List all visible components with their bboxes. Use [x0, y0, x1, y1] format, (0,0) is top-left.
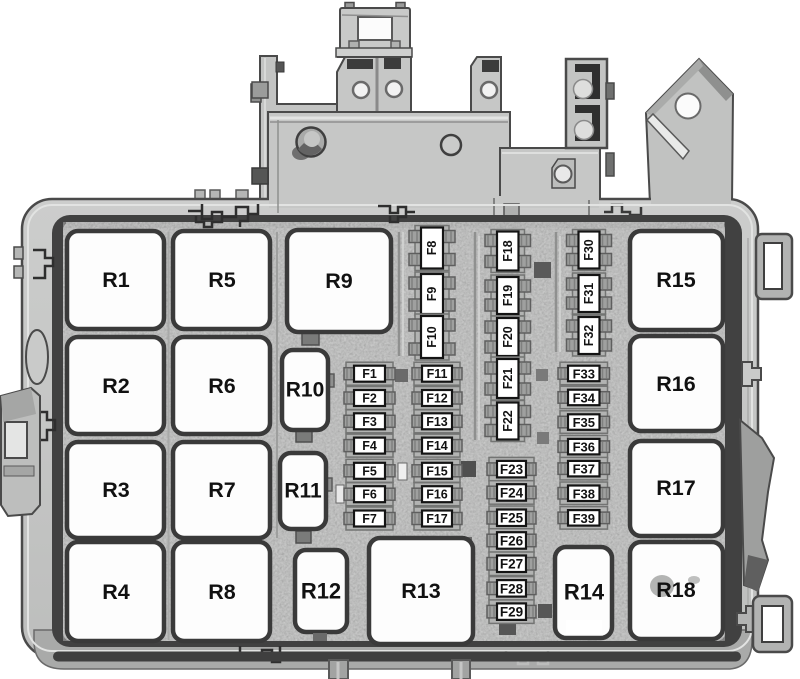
svg-text:F10: F10: [425, 326, 439, 348]
svg-text:F8: F8: [425, 241, 439, 256]
svg-text:R4: R4: [102, 580, 130, 604]
svg-text:R3: R3: [102, 478, 130, 502]
svg-text:F1: F1: [362, 367, 377, 381]
svg-text:F25: F25: [500, 511, 524, 526]
svg-text:F12: F12: [426, 392, 448, 406]
svg-text:F33: F33: [573, 366, 595, 381]
svg-text:F26: F26: [500, 534, 524, 549]
svg-text:R9: R9: [325, 269, 353, 293]
svg-text:R12: R12: [301, 579, 341, 604]
svg-text:F32: F32: [582, 325, 596, 347]
svg-text:F29: F29: [500, 605, 523, 620]
svg-text:F22: F22: [501, 410, 515, 432]
svg-text:F36: F36: [573, 440, 595, 455]
svg-text:R14: R14: [564, 580, 605, 605]
svg-text:F6: F6: [362, 488, 377, 502]
svg-text:F37: F37: [573, 462, 595, 477]
svg-text:F28: F28: [500, 581, 524, 596]
svg-text:F13: F13: [426, 415, 448, 429]
svg-text:F38: F38: [573, 486, 595, 501]
svg-text:F24: F24: [500, 485, 524, 500]
svg-text:F18: F18: [501, 240, 515, 262]
svg-text:F23: F23: [500, 462, 524, 477]
svg-text:F34: F34: [573, 390, 596, 405]
svg-text:F11: F11: [427, 367, 448, 381]
svg-text:F19: F19: [501, 285, 515, 307]
svg-text:R1: R1: [102, 268, 130, 292]
svg-text:F21: F21: [501, 368, 515, 390]
svg-text:R7: R7: [208, 478, 236, 502]
svg-text:F35: F35: [573, 415, 595, 430]
svg-text:F31: F31: [582, 283, 596, 305]
svg-text:F7: F7: [362, 512, 377, 526]
svg-text:R13: R13: [401, 579, 440, 603]
svg-text:F3: F3: [362, 415, 377, 429]
svg-text:F20: F20: [501, 326, 515, 348]
svg-text:R2: R2: [102, 374, 130, 398]
svg-text:F9: F9: [425, 287, 439, 302]
svg-text:R16: R16: [656, 372, 695, 396]
svg-text:R5: R5: [208, 268, 236, 292]
svg-text:F27: F27: [500, 557, 523, 572]
svg-text:F16: F16: [426, 488, 448, 502]
svg-text:F17: F17: [426, 512, 448, 526]
svg-text:F30: F30: [582, 239, 596, 261]
svg-text:R10: R10: [286, 379, 325, 402]
svg-text:F14: F14: [426, 439, 448, 453]
svg-text:R8: R8: [208, 580, 236, 604]
svg-text:F2: F2: [362, 392, 377, 406]
svg-text:F5: F5: [362, 464, 377, 478]
svg-text:F4: F4: [362, 439, 377, 453]
svg-text:F15: F15: [426, 464, 448, 478]
svg-text:R18: R18: [656, 578, 695, 602]
svg-text:R6: R6: [208, 374, 236, 398]
svg-text:R15: R15: [656, 268, 695, 292]
svg-text:R11: R11: [284, 480, 322, 503]
svg-text:R17: R17: [656, 476, 695, 500]
svg-text:F39: F39: [573, 511, 595, 526]
